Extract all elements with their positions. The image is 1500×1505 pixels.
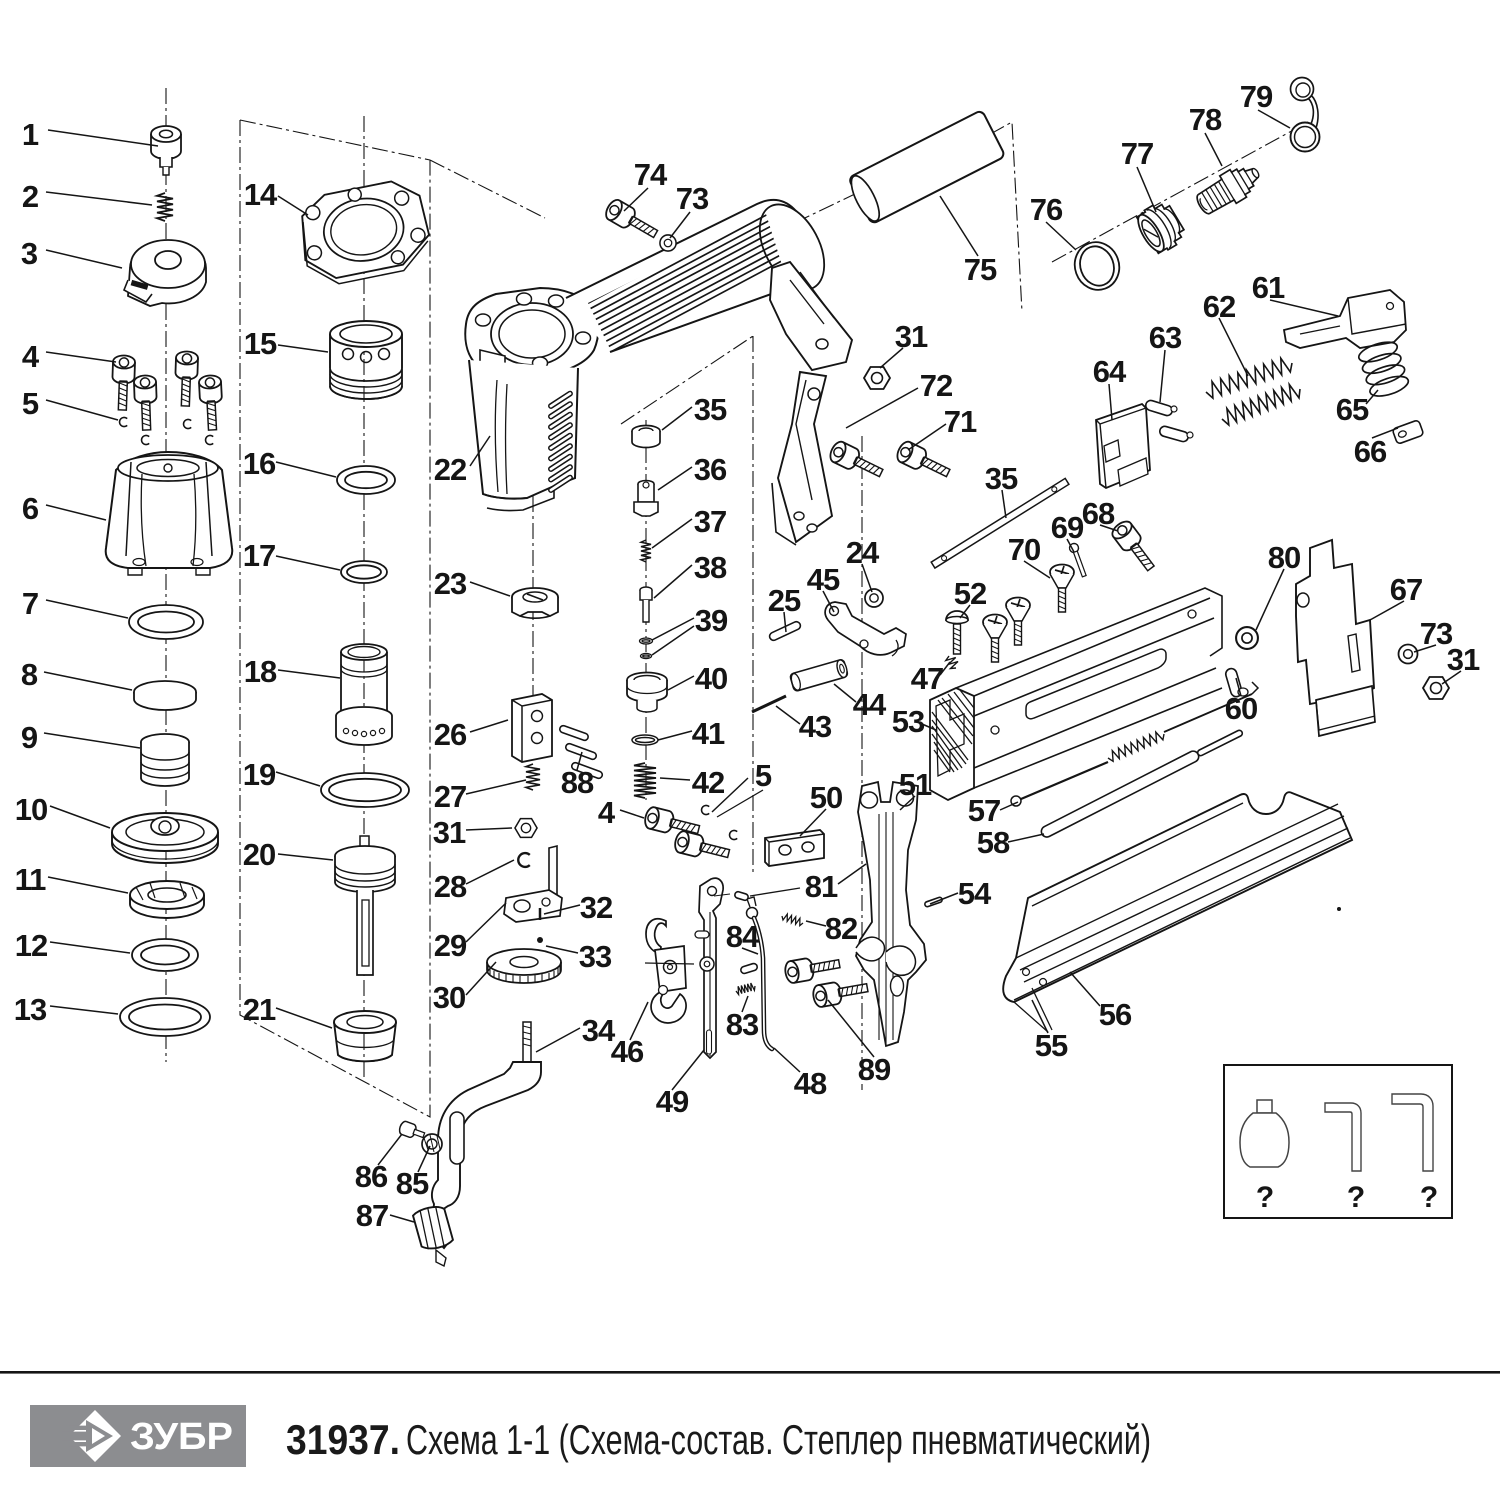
svg-text:9: 9 bbox=[21, 720, 38, 755]
svg-text:20: 20 bbox=[243, 837, 275, 872]
svg-text:41: 41 bbox=[692, 716, 725, 751]
svg-text:36: 36 bbox=[694, 452, 727, 487]
svg-text:19: 19 bbox=[243, 757, 276, 792]
svg-text:?: ? bbox=[1256, 1181, 1274, 1214]
svg-text:65: 65 bbox=[1336, 392, 1369, 427]
svg-text:10: 10 bbox=[15, 792, 47, 827]
svg-text:81: 81 bbox=[805, 869, 838, 904]
svg-text:6: 6 bbox=[22, 491, 39, 526]
svg-text:64: 64 bbox=[1093, 354, 1127, 389]
svg-text:72: 72 bbox=[920, 368, 952, 403]
svg-text:68: 68 bbox=[1082, 496, 1115, 531]
svg-text:73: 73 bbox=[676, 181, 709, 216]
svg-text:8: 8 bbox=[21, 657, 38, 692]
svg-text:51: 51 bbox=[899, 767, 932, 802]
svg-text:57: 57 bbox=[968, 793, 1000, 828]
svg-text:89: 89 bbox=[858, 1052, 891, 1087]
svg-text:Схема 1-1 (Схема-состав. Степл: Схема 1-1 (Схема-состав. Степлер пневмат… bbox=[406, 1416, 1151, 1463]
svg-text:56: 56 bbox=[1099, 997, 1132, 1032]
svg-text:27: 27 bbox=[434, 779, 466, 814]
svg-text:85: 85 bbox=[396, 1166, 429, 1201]
svg-text:87: 87 bbox=[356, 1198, 388, 1233]
svg-text:4: 4 bbox=[598, 795, 616, 830]
svg-text:32: 32 bbox=[580, 890, 612, 925]
svg-text:42: 42 bbox=[692, 765, 724, 800]
svg-text:11: 11 bbox=[15, 862, 47, 897]
svg-text:43: 43 bbox=[799, 709, 832, 744]
svg-text:28: 28 bbox=[434, 869, 467, 904]
svg-text:31: 31 bbox=[895, 319, 928, 354]
svg-text:31: 31 bbox=[1447, 642, 1480, 677]
svg-text:67: 67 bbox=[1390, 572, 1422, 607]
svg-text:83: 83 bbox=[726, 1007, 759, 1042]
svg-text:66: 66 bbox=[1354, 434, 1387, 469]
svg-text:39: 39 bbox=[695, 603, 728, 638]
svg-text:5: 5 bbox=[755, 758, 772, 793]
svg-text:53: 53 bbox=[892, 704, 925, 739]
svg-text:79: 79 bbox=[1240, 79, 1273, 114]
svg-text:5: 5 bbox=[22, 386, 39, 421]
svg-text:16: 16 bbox=[243, 446, 276, 481]
svg-text:47: 47 bbox=[911, 661, 943, 696]
svg-text:13: 13 bbox=[14, 992, 47, 1027]
svg-text:37: 37 bbox=[694, 504, 726, 539]
svg-text:46: 46 bbox=[611, 1034, 644, 1069]
svg-text:33: 33 bbox=[579, 939, 612, 974]
svg-text:23: 23 bbox=[434, 566, 467, 601]
svg-text:1: 1 bbox=[22, 117, 39, 152]
svg-text:26: 26 bbox=[434, 717, 467, 752]
svg-text:35: 35 bbox=[694, 392, 727, 427]
svg-text:22: 22 bbox=[434, 452, 466, 487]
svg-text:82: 82 bbox=[825, 911, 857, 946]
svg-text:78: 78 bbox=[1189, 102, 1222, 137]
svg-text:2: 2 bbox=[22, 179, 38, 214]
svg-text:14: 14 bbox=[244, 177, 278, 212]
svg-text:31: 31 bbox=[433, 815, 466, 850]
svg-text:54: 54 bbox=[958, 876, 992, 911]
svg-text:71: 71 bbox=[944, 404, 977, 439]
svg-text:58: 58 bbox=[977, 825, 1010, 860]
svg-text:75: 75 bbox=[964, 252, 997, 287]
svg-text:?: ? bbox=[1420, 1181, 1438, 1214]
svg-text:74: 74 bbox=[634, 157, 668, 192]
svg-text:88: 88 bbox=[561, 765, 594, 800]
svg-text:44: 44 bbox=[853, 687, 887, 722]
svg-text:21: 21 bbox=[243, 992, 276, 1027]
svg-text:63: 63 bbox=[1149, 320, 1182, 355]
svg-text:38: 38 bbox=[694, 550, 727, 585]
svg-text:12: 12 bbox=[15, 928, 47, 963]
svg-text:3: 3 bbox=[21, 236, 38, 271]
svg-text:30: 30 bbox=[433, 980, 465, 1015]
svg-text:15: 15 bbox=[244, 326, 277, 361]
svg-text:77: 77 bbox=[1121, 136, 1153, 171]
svg-text:61: 61 bbox=[1252, 270, 1285, 305]
svg-text:7: 7 bbox=[22, 586, 38, 621]
svg-text:4: 4 bbox=[22, 339, 40, 374]
svg-text:86: 86 bbox=[355, 1159, 388, 1194]
svg-text:17: 17 bbox=[243, 538, 275, 573]
svg-text:ЗУБР: ЗУБР bbox=[130, 1416, 233, 1458]
svg-text:18: 18 bbox=[244, 654, 277, 689]
svg-text:40: 40 bbox=[695, 661, 727, 696]
svg-text:?: ? bbox=[1347, 1181, 1365, 1214]
svg-text:55: 55 bbox=[1035, 1028, 1068, 1063]
svg-text:29: 29 bbox=[434, 928, 467, 963]
svg-text:60: 60 bbox=[1225, 691, 1257, 726]
svg-text:31937.: 31937. bbox=[286, 1416, 400, 1463]
